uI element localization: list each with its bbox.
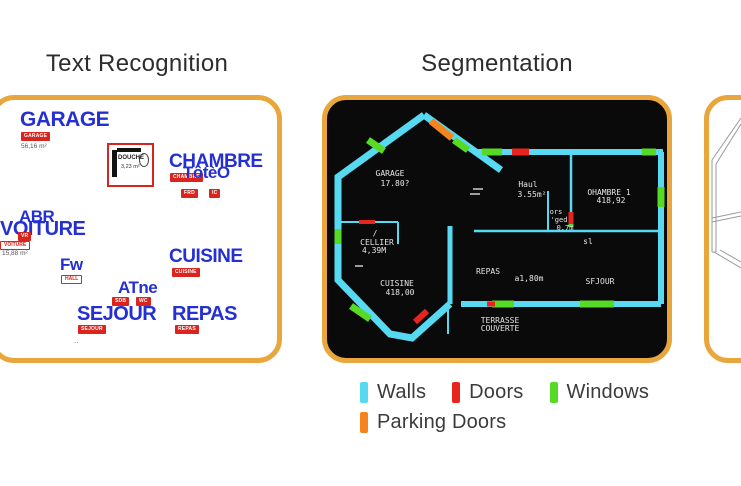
douche-wall-shape	[117, 148, 141, 152]
seg-label-ors: ors	[550, 208, 563, 216]
legend: Walls Doors Windows Parking Doors	[360, 381, 649, 434]
seg-label-garage: GARAGE	[376, 169, 405, 178]
seg-label-sejour: SFJOUR	[586, 277, 615, 286]
legend-label-walls: Walls	[377, 381, 426, 404]
seg-label-slash: /	[373, 229, 378, 238]
gt-tag-voiture: VOITURE	[0, 241, 30, 250]
seg-label-cuisine-area: 418,00	[386, 288, 415, 297]
gt-tag-hall: HALL	[61, 275, 82, 284]
ocr-fw: Fw	[60, 256, 83, 273]
seg-label-chambre-area: 418,92	[597, 196, 626, 205]
seg-label-terrasse-2: COUVERTE	[481, 324, 520, 333]
area-garage: 56,16 m²	[21, 143, 47, 150]
douche-area: 3,23 m²	[121, 164, 140, 170]
gt-tag-chambre-3: IC	[209, 189, 220, 198]
legend-label-parking-doors: Parking Doors	[377, 411, 506, 434]
gt-tag-sejour: SEJOUR	[78, 325, 106, 334]
seg-label-dim: a1,80m	[515, 274, 544, 283]
gt-tag-repas: REPAS	[175, 325, 199, 334]
ocr-repas: REPAS	[172, 304, 237, 324]
ocr-sejour: SEJOUR	[77, 304, 156, 324]
segmentation-panel: GARAGE 17.80? Haul 3.55m² OHAMBRE 1 418,…	[322, 95, 672, 363]
windows-swatch-icon	[550, 382, 558, 403]
seg-label-sl: sl	[583, 237, 593, 246]
legend-row-2: Parking Doors	[360, 411, 649, 434]
doors-swatch-icon	[452, 382, 460, 403]
douche-door-shape	[112, 150, 117, 177]
legend-item-parking-doors: Parking Doors	[360, 411, 506, 434]
seg-label-cuisine: CUISINE	[380, 279, 414, 288]
ocr-toteo: TôtèO	[183, 164, 230, 181]
legend-item-walls: Walls	[360, 381, 426, 404]
gt-tag-cuisine: CUISINE	[172, 268, 200, 277]
legend-row-1: Walls Doors Windows	[360, 381, 649, 404]
stray-marks: ..	[74, 336, 78, 345]
seg-label-garage-area: 17.80?	[381, 179, 410, 188]
room-labels-layer: GARAGE 17.80? Haul 3.55m² OHAMBRE 1 418,…	[360, 169, 631, 333]
walls-swatch-icon	[360, 382, 368, 403]
seg-label-ged-area: 0.7m	[557, 224, 574, 232]
area-voiture: 15,88 m²	[2, 250, 28, 257]
title-text-recognition: Text Recognition	[0, 50, 282, 78]
ocr-cuisine: CUISINE	[169, 247, 243, 266]
douche-fixture-shape	[139, 153, 149, 167]
title-segmentation: Segmentation	[322, 50, 672, 78]
ocr-atne: ATne	[118, 279, 157, 296]
gt-tag-chambre-2: FRD	[181, 189, 198, 198]
model-3d-panel	[704, 95, 741, 363]
wireframe-lines	[712, 118, 741, 268]
ocr-abr: ABR	[19, 208, 54, 225]
figure-canvas: Text Recognition Segmentation GARAGE GAR…	[0, 0, 741, 486]
seg-label-repas: REPAS	[476, 267, 500, 276]
legend-label-windows: Windows	[567, 381, 650, 404]
legend-label-doors: Doors	[469, 381, 523, 404]
seg-label-ged: 'ged	[551, 216, 568, 224]
wireframe-svg	[709, 100, 741, 358]
seg-label-hall: Haul	[518, 180, 537, 189]
gt-tag-voiture-small: VR	[18, 232, 31, 241]
seg-label-cellier-area: 4,39M	[362, 246, 386, 255]
gt-tag-garage: GARAGE	[21, 132, 50, 141]
text-recognition-panel: GARAGE GARAGE 56,16 m² DOUCHE 3,23 m² CH…	[0, 95, 282, 363]
floorplan-svg: GARAGE 17.80? Haul 3.55m² OHAMBRE 1 418,…	[327, 100, 667, 358]
parking-doors-swatch-icon	[360, 412, 368, 433]
ocr-garage: GARAGE	[20, 109, 109, 130]
seg-label-hall-area: 3.55m²	[518, 190, 547, 199]
legend-item-doors: Doors	[452, 381, 523, 404]
legend-item-windows: Windows	[550, 381, 650, 404]
douche-detection-box: DOUCHE 3,23 m²	[107, 143, 154, 187]
